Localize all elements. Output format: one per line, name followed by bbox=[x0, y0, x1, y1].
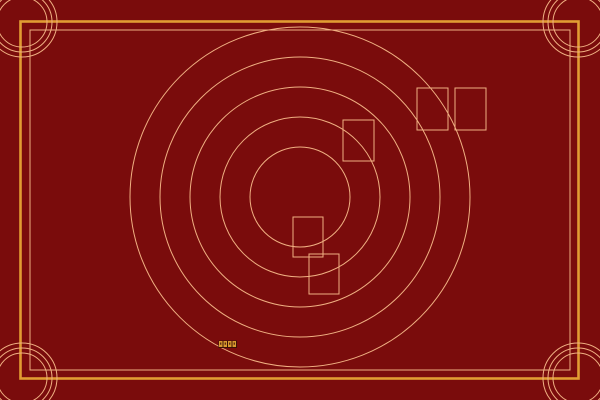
scene-svg bbox=[0, 0, 600, 400]
table-felt-background bbox=[0, 0, 600, 400]
mini-tile-counter bbox=[219, 341, 238, 349]
mini-tile-dot bbox=[225, 343, 226, 345]
game-table bbox=[0, 0, 600, 400]
mini-tile-dot bbox=[234, 343, 235, 345]
mini-tile-dot bbox=[229, 343, 230, 345]
mini-tile-dot bbox=[220, 343, 221, 345]
